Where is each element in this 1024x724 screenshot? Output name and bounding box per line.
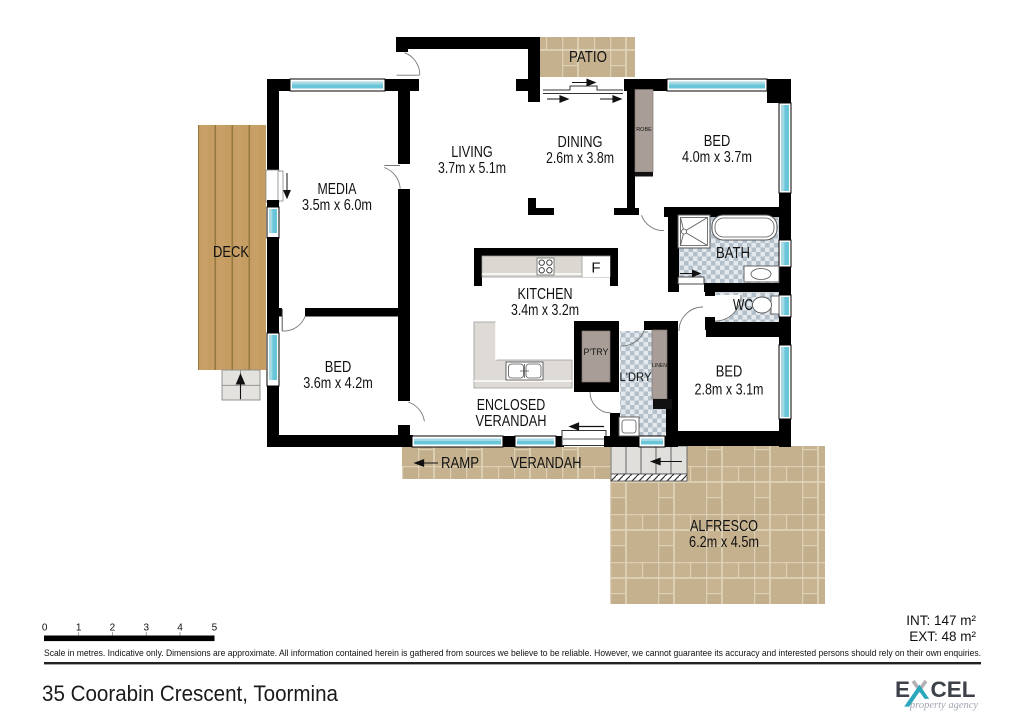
svg-text:PATIO: PATIO	[569, 49, 607, 66]
svg-text:Scale in metres. Indicative on: Scale in metres. Indicative only. Dimens…	[44, 648, 981, 658]
svg-text:3.7m x 5.1m: 3.7m x 5.1m	[438, 160, 506, 177]
svg-text:BED: BED	[704, 133, 731, 150]
svg-text:LIVING: LIVING	[451, 144, 493, 161]
svg-text:CEL: CEL	[931, 677, 976, 702]
svg-text:BED: BED	[716, 364, 743, 381]
svg-text:P'TRY: P'TRY	[584, 347, 610, 358]
svg-text:LINEN: LINEN	[652, 363, 667, 369]
svg-text:3: 3	[144, 623, 150, 634]
svg-text:6.2m x 4.5m: 6.2m x 4.5m	[689, 534, 759, 551]
svg-text:INT: 147 m²: INT: 147 m²	[906, 613, 976, 628]
svg-text:0: 0	[42, 623, 48, 634]
svg-text:35 Coorabin Crescent, Toormina: 35 Coorabin Crescent, Toormina	[42, 681, 338, 706]
svg-text:VERANDAH: VERANDAH	[511, 455, 582, 472]
svg-text:KITCHEN: KITCHEN	[518, 286, 573, 303]
svg-text:E: E	[895, 677, 910, 702]
svg-text:3.5m x 6.0m: 3.5m x 6.0m	[302, 197, 372, 214]
svg-text:3.6m x 4.2m: 3.6m x 4.2m	[303, 375, 373, 392]
svg-text:1: 1	[76, 623, 82, 634]
svg-text:VERANDAH: VERANDAH	[476, 413, 547, 430]
svg-text:EXT: 48 m²: EXT: 48 m²	[909, 629, 976, 644]
svg-text:DINING: DINING	[558, 134, 603, 151]
svg-text:F: F	[591, 260, 600, 277]
svg-text:BATH: BATH	[716, 245, 750, 262]
svg-text:L'DRY: L'DRY	[620, 370, 652, 384]
svg-text:2.6m x 3.8m: 2.6m x 3.8m	[546, 150, 614, 167]
svg-text:3.4m x 3.2m: 3.4m x 3.2m	[511, 302, 579, 319]
svg-text:2: 2	[110, 623, 116, 634]
svg-text:ENCLOSED: ENCLOSED	[477, 397, 546, 414]
svg-text:ALFRESCO: ALFRESCO	[690, 518, 758, 535]
svg-text:4: 4	[177, 623, 183, 634]
svg-text:BED: BED	[325, 359, 352, 376]
svg-text:ROBE: ROBE	[636, 127, 652, 133]
svg-text:DECK: DECK	[213, 244, 250, 261]
svg-text:MEDIA: MEDIA	[318, 181, 358, 198]
svg-text:2.8m x 3.1m: 2.8m x 3.1m	[695, 382, 764, 399]
svg-text:RAMP: RAMP	[441, 455, 479, 472]
svg-text:4.0m x 3.7m: 4.0m x 3.7m	[682, 149, 752, 166]
svg-text:property agency: property agency	[909, 700, 978, 711]
svg-text:WC: WC	[733, 297, 753, 314]
svg-text:5: 5	[212, 623, 218, 634]
